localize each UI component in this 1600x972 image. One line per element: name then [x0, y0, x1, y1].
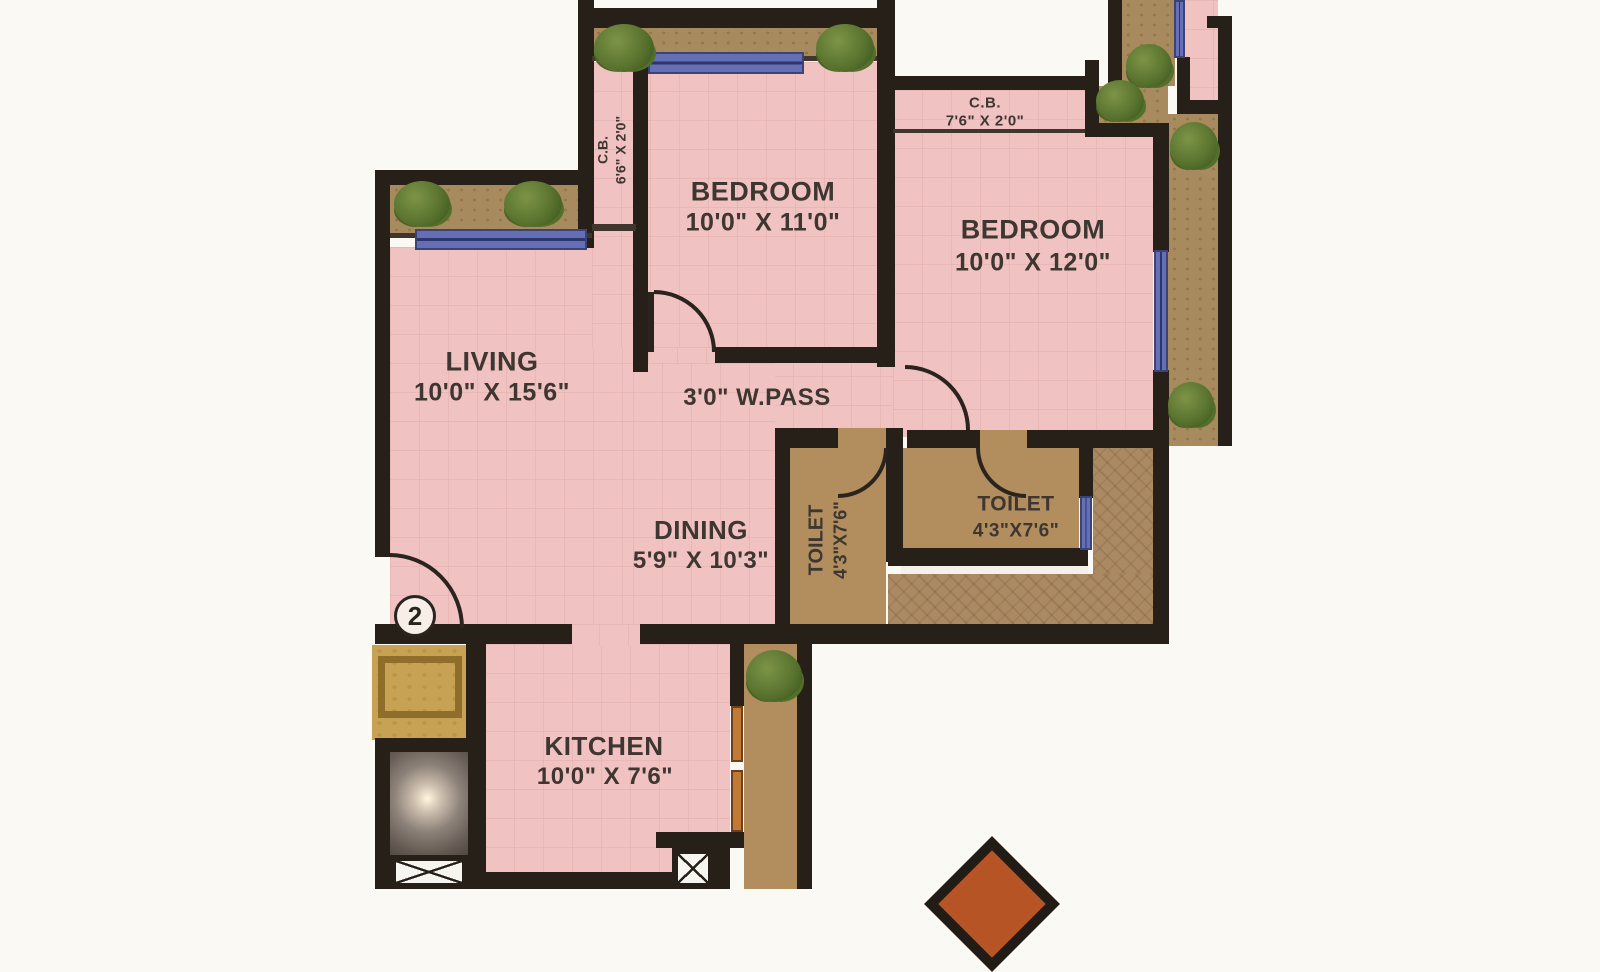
cb2-dims: 7'6" X 2'0" [946, 114, 1025, 129]
wall [375, 170, 592, 185]
toilet2-dims: 4'3"X7'6" [973, 522, 1060, 541]
shrub-icon [746, 650, 802, 702]
wall [1108, 0, 1122, 86]
toilet1-dims: 4'3"X7'6" [829, 501, 852, 579]
dining-dims: 5'9" X 10'3" [633, 549, 769, 573]
bedroom2-label: BEDROOM [961, 217, 1106, 244]
compass-north-arrow [924, 836, 1060, 972]
bedroom2-dims: 10'0" X 12'0" [955, 251, 1111, 276]
adjacent-window [1174, 0, 1185, 58]
cb1-label-block: C.B. 6'6" X 2'0" [595, 116, 630, 184]
toilet2-door-gap [980, 430, 1027, 448]
toilet2-window [1080, 496, 1092, 550]
shrub-icon [594, 24, 654, 72]
bedroom1-label: BEDROOM [691, 179, 836, 206]
service-door-panel [731, 770, 743, 832]
toilet2-sill [901, 566, 1088, 574]
wall [1207, 16, 1232, 28]
staircase-frame [378, 656, 462, 718]
cb2-label: C.B. [969, 96, 1001, 111]
wpass-label: 3'0" W.PASS [683, 386, 831, 410]
shrub-icon [1096, 80, 1144, 122]
lift-shaft [390, 752, 468, 855]
wall [714, 848, 730, 889]
service-door-panel [731, 706, 743, 762]
duct-crossed-box [672, 848, 714, 889]
wall [730, 644, 744, 706]
dining-label: DINING [654, 517, 748, 543]
wall [775, 428, 790, 626]
wall [1218, 20, 1232, 446]
wall [1079, 448, 1093, 498]
bedroom2-window [1154, 250, 1168, 372]
toilet1-door-gap [838, 428, 886, 448]
wall [656, 832, 744, 848]
kitchen-dims: 10'0" X 7'6" [537, 765, 673, 789]
kitchen-entry-floor [570, 624, 640, 646]
bedroom1-window [648, 52, 804, 74]
wall [1085, 123, 1169, 137]
toilet1-label-block: TOILET 4'3"X7'6" [804, 501, 852, 579]
duct-crossed-box [390, 855, 468, 889]
living-label: LIVING [445, 349, 538, 376]
bedroom1-dims: 10'0" X 11'0" [686, 211, 841, 236]
wall [1177, 57, 1190, 107]
shrub-icon [1126, 44, 1172, 88]
service-terrace-floor [888, 574, 1153, 624]
wall [1153, 448, 1169, 644]
wall [470, 872, 672, 889]
wall [375, 738, 390, 889]
wall [715, 347, 893, 363]
wall [1153, 370, 1169, 448]
toilet2-label: TOILET [977, 494, 1054, 515]
living-window [415, 229, 587, 250]
wall [893, 76, 1099, 90]
living-dims: 10'0" X 15'6" [414, 381, 570, 406]
floor-plan-page: { "plan": { "unit_badge": "2", "rooms": … [0, 0, 1600, 889]
cupboard-line [893, 129, 1085, 133]
shrub-icon [816, 24, 874, 72]
wall [640, 624, 1168, 644]
wall [907, 430, 980, 448]
unit-number-badge: 2 [394, 595, 436, 637]
service-terrace-side [1093, 448, 1153, 574]
kitchen-label: KITCHEN [544, 733, 663, 759]
wall [578, 0, 594, 248]
wall [375, 738, 470, 752]
cb1-dims: 6'6" X 2'0" [612, 116, 630, 184]
wall [1153, 137, 1169, 252]
wall [375, 170, 390, 557]
wall [888, 548, 1088, 566]
shrub-icon [1170, 122, 1218, 170]
wall [633, 62, 648, 372]
shrub-icon [1168, 382, 1214, 428]
wall [886, 428, 903, 562]
wall [466, 626, 486, 889]
wall [877, 0, 895, 367]
toilet1-label: TOILET [804, 501, 829, 579]
shrub-icon [504, 181, 562, 227]
cb1-label: C.B. [595, 116, 613, 184]
wall [1027, 430, 1153, 448]
shrub-icon [394, 181, 450, 227]
cupboard-divider-line [592, 224, 636, 231]
